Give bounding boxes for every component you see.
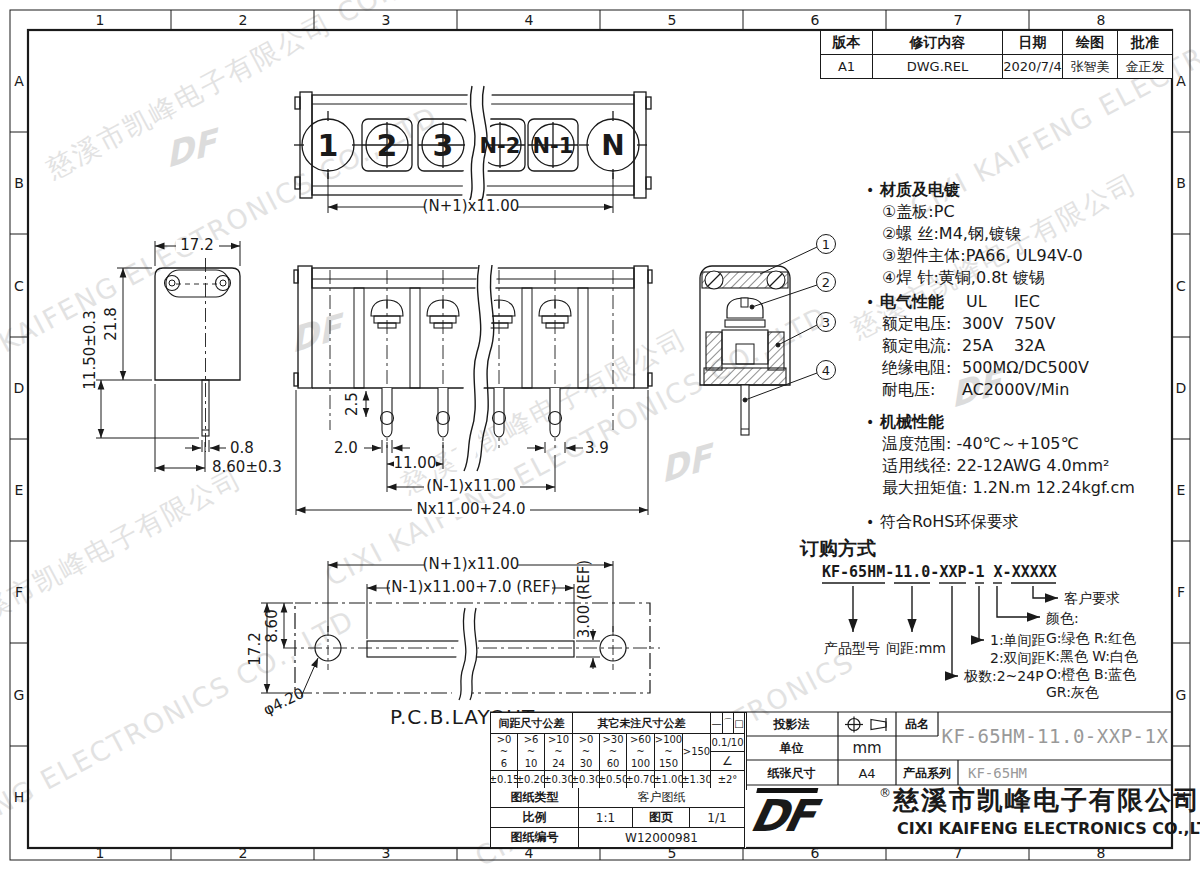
top-view [294,86,651,214]
drawing-type-value: 客户图纸 [579,788,745,808]
company-name-cn: 慈溪市凯峰电子有限公司 [893,783,1173,818]
svg-text:17.2: 17.2 [246,632,264,665]
svg-text:B: B [14,175,24,191]
terminal-label: N-1 [533,134,574,158]
dim-top-pitch: (N+1)x11.00 [423,197,520,215]
svg-text:8.60±0.3: 8.60±0.3 [212,458,282,476]
paper-size-value: A4 [838,762,896,784]
company-name-en: CIXI KAIFENG ELECTRONICS CO.,LTD [897,819,1200,838]
material-item: ②螺 丝:M4,钢,镀镍 [882,224,1021,245]
scale-label: 比例 [491,808,579,828]
svg-text:2: 2 [239,845,248,861]
svg-text:1: 1 [822,237,830,252]
svg-text:D: D [1176,380,1187,396]
registered-mark: ® [879,786,891,800]
kaifeng-company-logo: DF [747,788,818,838]
taper-tolerance: 0.1/10 [711,734,745,752]
pitch-tol-header: 间距尺寸公差 [491,713,573,734]
paper-size-label: 纸张尺寸 [745,762,838,784]
svg-text:1: 1 [96,845,105,861]
svg-text:11.00: 11.00 [394,454,437,472]
svg-text:2.0: 2.0 [334,439,358,457]
electrical-title: 电气性能 [880,292,944,313]
ordering-pitch-label: 间距:mm [886,640,946,658]
electrical-iec-value: 750V [1014,314,1055,333]
svg-text:3.9: 3.9 [585,439,609,457]
svg-text:G: G [1176,687,1187,703]
product-series-label: 产品系列 [896,762,958,784]
svg-text:6: 6 [811,845,820,861]
svg-text:7: 7 [954,12,963,28]
ordering-title: 订购方式 [800,536,876,562]
terminal-label: 2 [377,128,398,163]
rev-date: 2020/7/4 [1003,54,1063,78]
part-name-label: 品名 [896,713,938,735]
scale-row: 比例 1:1 图页 1/1 [490,808,746,828]
unit-value: mm [838,737,896,759]
rev-approved-by: 金正发 [1118,54,1173,78]
svg-text:11.50±0.3: 11.50±0.3 [81,310,99,389]
symbol-square: □ [734,713,745,734]
terminal-label: N [601,129,624,162]
svg-text:A: A [1176,73,1186,89]
ordering-double-label: 2:双间距 [990,650,1046,668]
side-view-dim-labels: 17.2 21.8 11.50±0.3 0.8 8.60±0.3 [81,236,282,476]
symbol-flat: — [711,713,723,734]
page-label: 图页 [633,808,690,828]
angle-symbol: ∠ [711,752,745,771]
svg-text:C: C [14,278,24,294]
ordering-code: KF-65HM-11.0-XXP-1 X-XXXXX [822,563,1057,581]
bullet: • [866,414,874,430]
drawing-type-label: 图纸类型 [491,788,579,808]
electrical-ul-value: 500MΩ/DC500V [962,358,1089,377]
svg-text:21.8: 21.8 [102,307,120,340]
drawing-type-row: 图纸类型 客户图纸 [490,788,746,808]
page-value: 1/1 [690,808,745,828]
other-range: >30 ~ 60 [600,734,627,771]
svg-text:8: 8 [1097,845,1106,861]
other-tol-value: ±0.50 [600,771,627,789]
svg-text:17.2: 17.2 [180,236,213,254]
svg-text:4: 4 [822,363,830,378]
part-name-value: KF-65HM-11.0-XXP-1X [938,712,1172,760]
side-view [96,240,240,472]
rohs-note: 符合RoHS环保要求 [880,512,1018,533]
drawing-number-label: 图纸编号 [491,828,579,848]
svg-text:A: A [14,73,24,89]
ordering-poles-label: 极数:2~24P [964,668,1044,686]
svg-text:C: C [1176,278,1186,294]
drawing-number-value: W12000981 [579,828,745,848]
other-tol-value: ±0.30 [573,771,600,789]
other-range: >60 ~ 100 [627,734,655,771]
ordering-color-row: G:绿色 R:红色 [1046,630,1136,648]
svg-text:(N+1)x11.00: (N+1)x11.00 [423,555,520,573]
electrical-ul-value: 25A [962,336,993,355]
pcb-dim-labels: (N+1)x11.00 (N-1)x11.00+7.0 (REF) 3.00 (… [246,555,593,719]
other-range: >100 ~ 150 [655,734,683,771]
other-tol-value: ±0.70 [627,771,655,789]
svg-text:8.60: 8.60 [263,609,281,642]
pitch-range: >6 ~ 10 [518,734,545,771]
mechanical-item: 适用线径: 22-12AWG 4.0mm² [882,456,1109,477]
electrical-col-iec: IEC [1014,292,1040,311]
svg-text:Nx11.00+24.0: Nx11.00+24.0 [416,500,525,518]
rev-col-version: 版本 [821,30,873,54]
ordering-single-label: 1:单间距 [990,632,1046,650]
section-view [700,235,836,436]
terminal-label: 3 [433,128,454,163]
rev-col-date: 日期 [1003,30,1063,54]
electrical-ul-value: AC2000V/Min [962,380,1069,399]
angle-tol-value: ±2° [711,771,745,789]
svg-text:2: 2 [239,12,248,28]
rev-content: DWG.REL [873,54,1003,78]
other-range: >150 [683,734,711,771]
unit-label: 单位 [745,737,838,759]
svg-text:6: 6 [811,12,820,28]
ordering-customer-label: 客户要求 [1064,590,1120,608]
drawing-sheet: 慈溪市凯峰电子有限公司 CO., LTD CIXI KAIFENG ELECTR… [0,0,1200,870]
bullet: • [866,514,874,530]
svg-text:E: E [1177,482,1186,498]
terminal-label: N-2 [480,134,521,158]
svg-text:2: 2 [822,275,830,290]
ordering-model-label: 产品型号 [824,640,880,658]
scale-value: 1:1 [579,808,633,828]
side-view-dims [96,240,240,472]
svg-text:5: 5 [668,12,677,28]
rev-col-approved: 批准 [1118,30,1173,54]
bullet: • [866,294,874,310]
product-series-value: KF-65HM [958,762,1088,784]
electrical-iec-value: 32A [1014,336,1045,355]
pitch-range: >10 ~ 24 [545,734,573,771]
rev-col-drawn: 绘图 [1063,30,1118,54]
ordering-color-row: K:黑色 W:白色 [1046,648,1138,666]
svg-text:E: E [15,482,24,498]
pitch-tol-value: ±0.30 [545,771,573,789]
first-angle-projection-icon [845,716,891,733]
mechanical-item: 温度范围: -40℃～+105℃ [882,434,1079,455]
svg-text:7: 7 [954,845,963,861]
electrical-ul-value: 300V [962,314,1003,333]
bullet: • [866,182,874,198]
section-callout-labels: 1 2 3 4 [822,237,830,378]
rev-col-content: 修订内容 [873,30,1003,54]
svg-text:(N-1)x11.00+7.0 (REF): (N-1)x11.00+7.0 (REF) [385,578,556,596]
drawing-number-row: 图纸编号 W12000981 [490,828,746,848]
svg-text:H: H [14,789,25,805]
revision-table: 版本 修订内容 日期 绘图 批准 A1 DWG.REL 2020/7/4 张智美… [820,30,1173,79]
pitch-tol-value: ±0.15 [491,771,518,789]
svg-text:2.5: 2.5 [343,392,361,416]
other-range: >0 ~ 30 [573,734,600,771]
svg-text:8: 8 [1097,12,1106,28]
projection-label: 投影法 [745,713,838,735]
pitch-range: >0 ~ 6 [491,734,518,771]
svg-text:3: 3 [382,12,391,28]
svg-text:F: F [15,584,23,600]
pitch-tol-value: ±0.20 [518,771,545,789]
mechanical-item: 最大扭矩值: 1.2N.m 12.24kgf.cm [882,478,1135,499]
svg-text:3: 3 [822,315,830,330]
material-item: ④焊 针:黄铜,0.8t 镀锡 [882,268,1045,289]
material-item: ③塑件主体:PA66, UL94V-0 [882,246,1083,267]
other-tol-value: ±1.00 [655,771,683,789]
material-item: ①盖板:PC [882,202,955,223]
svg-text:4: 4 [525,12,534,28]
tolerance-table: 间距尺寸公差 其它未注尺寸公差 — ⌒ □ >0 ~ 6 >6 ~ 10 >10… [490,712,747,790]
terminal-label: 1 [318,128,339,163]
mechanical-title: 机械性能 [880,412,944,433]
ordering-color-row: O:橙色 B:蓝色 [1046,666,1136,684]
rev-drawn-by: 张智美 [1063,54,1118,78]
ordering-color-title: 颜色: [1046,610,1079,628]
electrical-label: 额定电压: [882,314,951,335]
electrical-col-ul: UL [966,292,987,311]
symbol-arc: ⌒ [723,713,734,734]
svg-text:1: 1 [96,12,105,28]
electrical-label: 额定电流: [882,336,951,357]
svg-text:G: G [14,687,25,703]
rev-version: A1 [821,54,873,78]
svg-text:3.00 (REF): 3.00 (REF) [575,560,593,638]
ordering-color-row: GR:灰色 [1046,684,1099,702]
svg-text:F: F [1177,584,1185,600]
svg-text:0.8: 0.8 [230,439,254,457]
electrical-label: 绝缘电阻: [882,358,951,379]
svg-text:3: 3 [382,845,391,861]
material-title: 材质及电镀 [880,180,960,201]
svg-text:(N-1)x11.00: (N-1)x11.00 [426,477,516,495]
other-tol-header: 其它未注尺寸公差 [573,713,711,734]
other-tol-value: ±1.30 [683,771,711,789]
svg-text:B: B [1176,175,1186,191]
svg-text:D: D [14,380,25,396]
electrical-label: 耐电压: [882,380,935,401]
